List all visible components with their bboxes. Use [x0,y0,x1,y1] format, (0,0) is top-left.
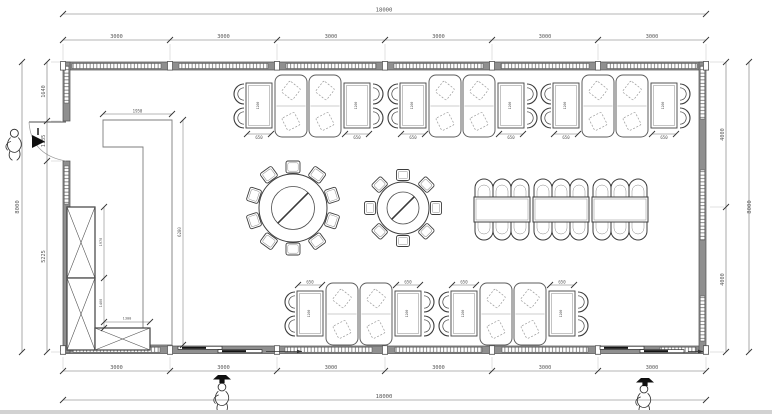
table-length-label: 1200 [461,310,465,318]
column-post [382,346,387,355]
side-chair [541,84,551,104]
furniture-layer: 1200650120065012006501200650120065012006… [67,75,690,350]
banquet-table [474,197,530,222]
side-chair-inner [238,112,244,124]
side-chair [578,292,588,312]
side-chair [388,108,398,128]
side-chair-inner [392,88,398,100]
window-glazing [607,64,697,69]
side-chair-inner [545,112,551,124]
side-chair-inner [527,88,533,100]
side-chair [680,84,690,104]
window-glazing [179,64,268,69]
dim-label: 3000 [325,34,338,40]
column-post [60,62,65,71]
side-chair-inner [578,296,584,308]
side-chair [527,108,537,128]
side-chair-inner [527,112,533,124]
side-chair-inner [680,112,686,124]
side-chair [234,108,244,128]
table-length-label: 1200 [559,310,563,318]
dim-label: 3000 [646,365,659,371]
banquet-chair [493,179,511,197]
side-chair-inner [392,112,398,124]
side-chair-inner [238,88,244,100]
table-length-label: 1200 [563,102,567,110]
round-table-large [246,161,340,255]
column-post [489,62,494,71]
dim-label: 6280 [177,227,182,237]
overall-width-label-top: 18000 [376,8,393,14]
banquet-chair [552,222,570,240]
window-glazing [501,64,589,69]
side-chair-inner [443,296,449,308]
dim-label: 3000 [432,34,445,40]
side-chair [541,108,551,128]
window-glazing [64,166,69,204]
person-body [215,391,228,404]
side-chair [373,108,383,128]
banquet-chair [552,179,570,197]
side-chair [424,316,434,336]
floor-plan-canvas: 1200650120065012006501200650120065012006… [0,0,772,414]
dim-label: 1640 [41,85,47,98]
window-glazing [64,66,69,103]
dim-label: 650 [558,280,566,285]
person-figure [214,383,229,413]
column-post [274,346,279,355]
banquet-chair [611,179,629,197]
partition-counter [103,120,172,345]
dim-label: 3000 [539,34,552,40]
side-chair-inner [289,296,295,308]
side-chair [285,292,295,312]
banquet-chair [593,222,611,240]
person-legs [9,150,20,160]
window-glazing [395,347,482,352]
column-post [60,346,65,355]
dim-label: 3000 [110,365,123,371]
dimension-chain: 300030003000300030003000 [60,357,709,374]
banquet-table [592,197,648,222]
window-glazing [700,66,705,119]
column-post [595,62,600,71]
side-chair [285,316,295,336]
dim-label: 5225 [41,250,47,263]
table-length-label: 1200 [307,310,311,318]
dim-label: 650 [660,135,668,140]
banquet-run [474,179,648,240]
banquet-chair [534,222,552,240]
partition-height-dim: 6280 [177,117,186,348]
table-length-label: 1200 [410,102,414,110]
dim-label: 3000 [110,34,123,40]
dim-label: 1970 [99,238,103,247]
side-chair-inner [545,88,551,100]
dimension-chain: 164011355225 [41,59,61,355]
dim-label: 3000 [217,365,230,371]
table-length-label: 1200 [256,102,260,110]
person-head [218,383,226,391]
overall-width-label-bottom: 18000 [376,394,393,400]
table-length-label: 1200 [508,102,512,110]
banquet-chair [570,222,588,240]
dim-label: 4000 [720,273,726,286]
overall-height-label-right: 8000 [747,200,753,213]
banquet-chair [629,222,647,240]
side-chair [439,316,449,336]
cabinet-block: 197014001300 [67,204,153,350]
table-length-label: 1200 [354,102,358,110]
banquet-chair [570,179,588,197]
round-table-small [365,170,442,247]
window-glazing [72,64,161,69]
entry-marker-stem [642,383,647,387]
banquet-chair [475,179,493,197]
column-post [167,62,172,71]
banquet-chair [511,222,529,240]
dim-label: 1950 [133,109,143,114]
booth-group: 12006501200650 [234,75,383,140]
dim-label: 650 [306,280,314,285]
booth-group: 12006501200650 [285,280,434,346]
side-chair-inner [424,296,430,308]
dim-label: 650 [507,135,515,140]
banquet-chair [475,222,493,240]
dim-label: 3000 [217,34,230,40]
entry-marker-icon [636,378,654,383]
banquet-chair [593,179,611,197]
column-post [703,346,708,355]
side-chair-inner [443,320,449,332]
column-post [489,346,494,355]
banquet-chair [629,179,647,197]
side-chair [578,316,588,336]
dim-label: 3000 [325,365,338,371]
window-glazing [700,296,705,341]
banquet-chair [511,179,529,197]
side-chair [388,84,398,104]
side-chair-inner [424,320,430,332]
side-chair-inner [289,320,295,332]
side-chair [680,108,690,128]
person-head [10,129,18,137]
person-body [637,393,650,406]
person-body [7,138,21,151]
dim-label: 4000 [720,128,726,141]
column-post [167,346,172,355]
side-chair [527,84,537,104]
page-bottom-edge [0,410,772,414]
dim-label: 650 [404,280,412,285]
floor-plan-drawing: 1200650120065012006501200650120065012006… [0,0,772,414]
dim-label: 1400 [99,299,103,308]
column-post [703,62,708,71]
dim-label: 650 [255,135,263,140]
dimension-chain: 40004000 [710,59,729,355]
dim-label: 3000 [432,365,445,371]
dim-label: 1300 [123,317,132,321]
person-figure [636,385,651,414]
person-figure [6,129,21,160]
dim-label: 650 [562,135,570,140]
table-length-label: 1200 [405,310,409,318]
side-chair [234,84,244,104]
column-post [274,62,279,71]
dim-label: 650 [409,135,417,140]
dim-label: 3000 [539,365,552,371]
side-chair-inner [680,88,686,100]
booth-group: 12006501200650 [388,75,537,140]
side-chair-inner [373,112,379,124]
person-head [640,385,648,393]
side-chair-inner [373,88,379,100]
window-glazing [502,347,588,352]
banquet-chair [611,222,629,240]
dimension-chain: 300030003000300030003000 [60,34,709,60]
banquet-table [533,197,589,222]
dim-label: 650 [460,280,468,285]
window-glazing [286,64,376,69]
booth-group: 12006501200650 [541,75,690,140]
entry-marker-stem [219,380,224,384]
table-length-label: 1200 [661,102,665,110]
dim-label: 3000 [646,34,659,40]
entry-marker-icon [213,375,231,380]
side-chair [424,292,434,312]
banquet-chair [493,222,511,240]
overall-height-label-left: 8000 [15,200,21,213]
side-chair [439,292,449,312]
window-glazing [700,170,705,240]
side-chair [373,84,383,104]
dim-label: 650 [353,135,361,140]
banquet-chair [534,179,552,197]
column-post [382,62,387,71]
side-chair-inner [578,320,584,332]
window-glazing [394,64,483,69]
booth-group: 12006501200650 [439,280,588,346]
